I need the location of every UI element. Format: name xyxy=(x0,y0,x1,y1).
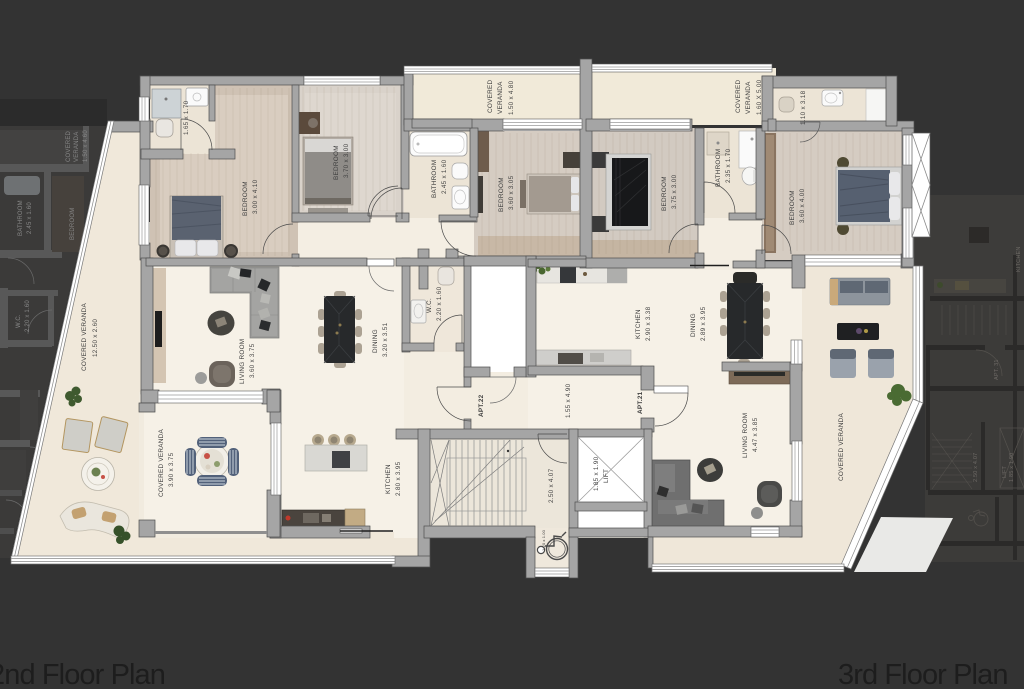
svg-text:COVEREDVERANDA1.60 X 5.00: COVEREDVERANDA1.60 X 5.00 xyxy=(735,79,763,115)
svg-text:COVEREDVERANDA1.50 x 4.60: COVEREDVERANDA1.50 x 4.60 xyxy=(66,130,89,162)
svg-text:BEDROOM: BEDROOM xyxy=(70,208,76,240)
svg-text:COVEREDVERANDA1.50 x 4.80: COVEREDVERANDA1.50 x 4.80 xyxy=(487,80,515,115)
svg-text:COVERED VERANDA: COVERED VERANDA xyxy=(838,412,845,481)
svg-text:APT.22: APT.22 xyxy=(478,394,485,417)
svg-text:APT. 31: APT. 31 xyxy=(994,359,1000,380)
svg-text:2.50 x 4.07: 2.50 x 4.07 xyxy=(548,468,555,503)
svg-text:1.20 x 1.00: 1.20 x 1.00 xyxy=(541,529,546,551)
svg-text:1.55 x 4.90: 1.55 x 4.90 xyxy=(565,383,572,418)
svg-text:1.10 x 3.18: 1.10 x 3.18 xyxy=(800,90,807,125)
svg-text:1.65 x 1.70: 1.65 x 1.70 xyxy=(183,100,190,135)
svg-text:APT.21: APT.21 xyxy=(637,391,644,414)
svg-text:2.50 x 4.07: 2.50 x 4.07 xyxy=(973,453,979,482)
svg-text:KITCHEN: KITCHEN xyxy=(1016,246,1022,272)
svg-text:3rd Floor Plan: 3rd Floor Plan xyxy=(838,659,1008,689)
svg-text:2nd Floor Plan: 2nd Floor Plan xyxy=(0,659,165,689)
